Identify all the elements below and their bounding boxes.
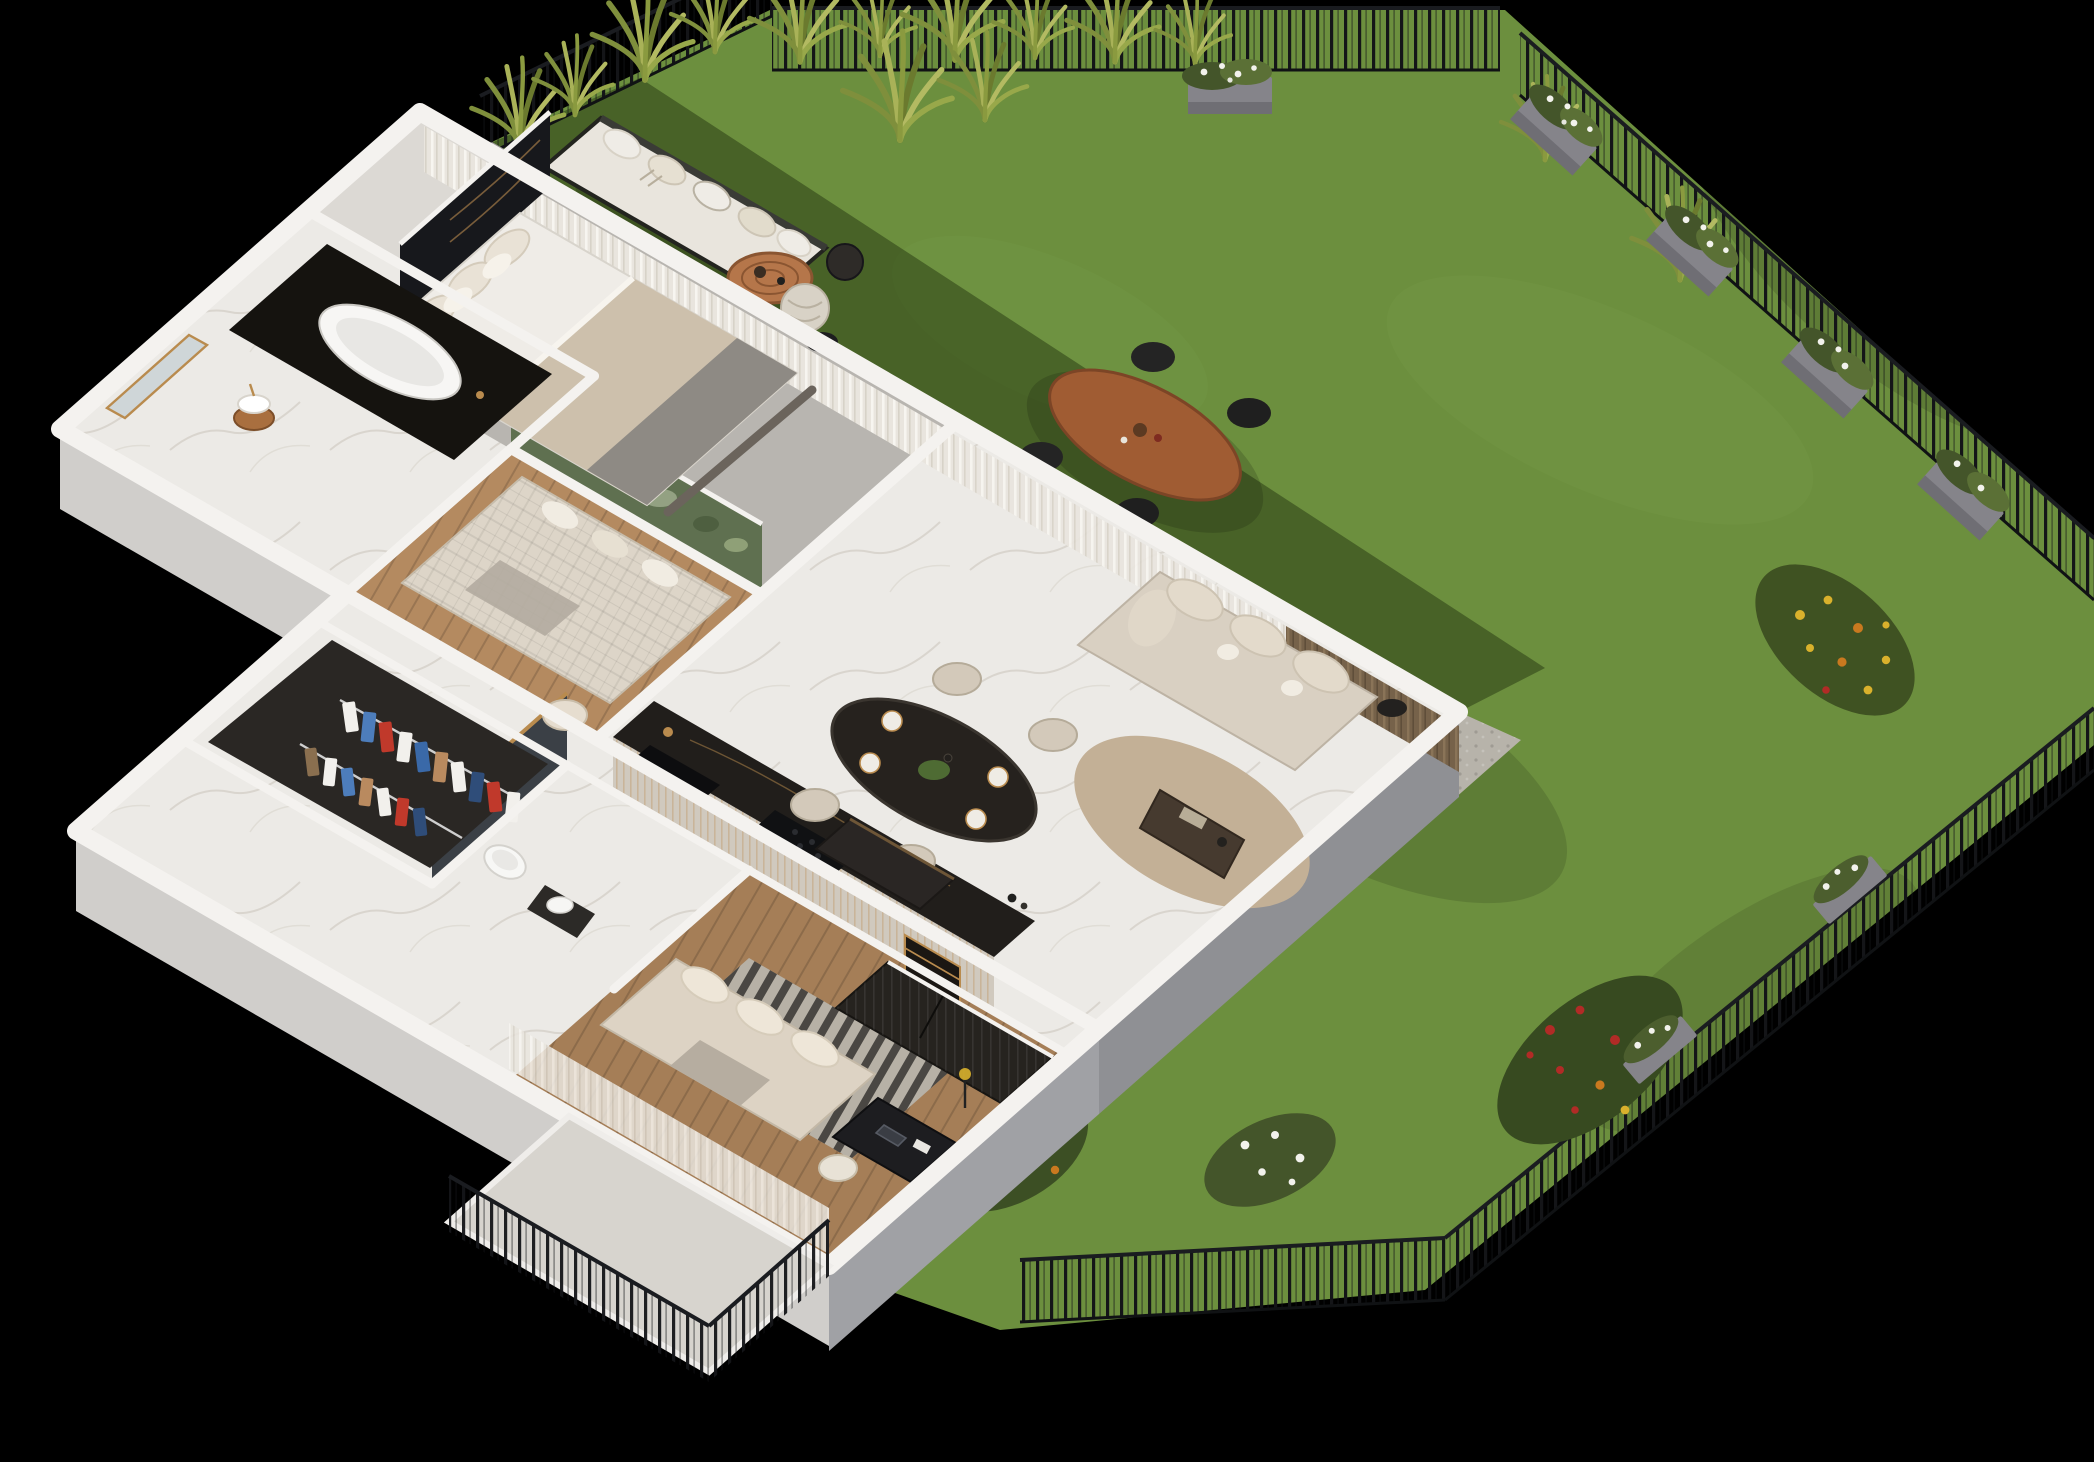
tub-faucet — [476, 391, 484, 399]
sphere-lantern — [827, 244, 863, 280]
table-decor — [754, 266, 766, 278]
gold-faucet — [663, 727, 673, 737]
sofa-pillow — [1281, 680, 1303, 696]
dining-chair — [791, 789, 839, 821]
floorplan-stage — [0, 0, 2094, 1462]
table-bottle — [1154, 434, 1162, 442]
dining-chair — [933, 663, 981, 695]
floorplan-render — [0, 0, 2094, 1462]
planter-box — [1182, 59, 1272, 114]
counter-bottle — [1021, 903, 1028, 910]
side-table — [1377, 699, 1407, 717]
table-centerpiece — [1133, 423, 1147, 437]
table-cup — [1121, 437, 1128, 444]
outdoor-chair — [1131, 342, 1175, 372]
coffee-table-bowl — [1217, 837, 1227, 847]
dining-chair — [1029, 719, 1077, 751]
sofa-pillow — [1217, 644, 1239, 660]
counter-bottle — [1008, 894, 1017, 903]
outdoor-chair — [1227, 398, 1271, 428]
desk-chair — [819, 1155, 857, 1181]
table-decor — [777, 277, 785, 285]
